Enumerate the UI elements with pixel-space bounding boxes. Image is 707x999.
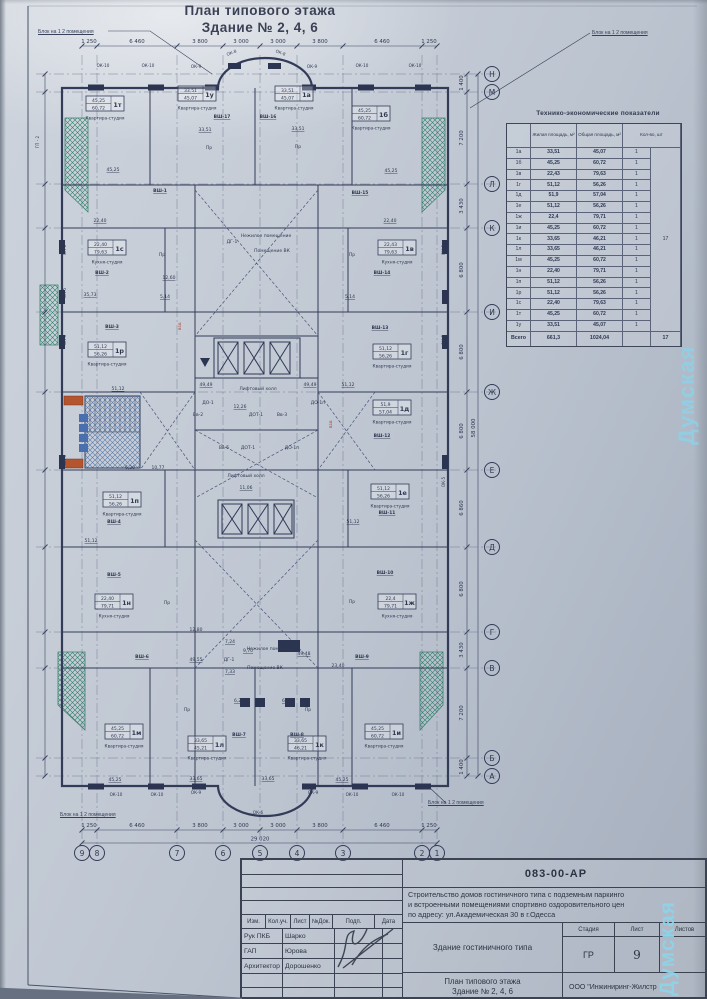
room-label: Пр [184, 707, 190, 713]
window-label: ОК-5 [62, 335, 67, 346]
area-number: 10,77 [152, 465, 165, 471]
area-number: 7,24 [225, 639, 235, 645]
area-number: 49,48 [298, 651, 311, 657]
apartment-type: Квартира-студия [373, 420, 412, 426]
room-label: ДГ-1 [224, 657, 235, 663]
area-number: 23,40 [332, 663, 345, 669]
teo-total: 56,26 [577, 202, 623, 213]
axis-bubble-label: 1 [435, 849, 440, 858]
apartment-code: 1н [122, 599, 131, 607]
dimension-bottom: 1 250 [421, 823, 437, 829]
apartment-living-area: 22,43 [384, 242, 397, 248]
dimension-right: 6 800 [459, 262, 465, 278]
role-architect: Архитектор [242, 958, 282, 973]
dimension-right: 1 400 [459, 75, 465, 91]
teo-code: 1п [507, 278, 531, 289]
name-doroshenko: Дорошенко [282, 958, 334, 973]
apartment-label: 45,2560,721тКвартира-студия [86, 96, 125, 122]
area-number: 45,25 [109, 777, 122, 783]
section-marker [200, 358, 210, 367]
apartment-code: 1к [315, 741, 324, 749]
teo-code: 1и [507, 224, 531, 235]
teo-code: 1н [507, 267, 531, 278]
teo-total: 57,04 [577, 191, 623, 202]
room-label: Пр [206, 145, 212, 151]
room-label: Пр [349, 599, 355, 605]
teo-merged-col [651, 159, 681, 170]
room-label: Вв-5 [219, 445, 229, 451]
teo-living: 33,51 [531, 321, 577, 332]
sheet-title-line1: План типового этажа [150, 3, 370, 18]
apartment-code: 1т [113, 101, 121, 109]
window-label: ОК-9 [191, 790, 202, 795]
area-number: 12,60 [163, 275, 176, 281]
teo-code: 1с [507, 299, 531, 310]
room-label: Пр [159, 252, 165, 258]
window-label: ОК-6 [62, 245, 67, 256]
room-label: Вв-3 [277, 412, 287, 418]
dimension-right: 7 200 [459, 705, 465, 721]
teo-code: 1в [507, 170, 531, 181]
window-label: ОК-10 [142, 63, 155, 68]
teo-code: 1а [507, 148, 531, 159]
apartment-total-area: 57,04 [379, 409, 392, 415]
dimension-total-bottom: 29 020 [251, 837, 270, 843]
teo-count: 1 [623, 224, 651, 235]
teo-living: 51,12 [531, 180, 577, 191]
room-label: ДО-1п [311, 400, 326, 406]
axis-bubble-label: Ж [488, 388, 496, 397]
svg-text:В1Б: В1Б [328, 420, 333, 428]
area-number: 7,33 [225, 669, 235, 675]
dimension-right: 6 800 [459, 581, 465, 597]
teo-total: 45,07 [577, 321, 623, 332]
axis-bubble-label: Л [489, 180, 495, 189]
teo-living: 45,25 [531, 310, 577, 321]
svg-text:В1Б: В1Б [177, 322, 182, 330]
window-label: ОК-5 [441, 477, 446, 488]
apartment-label: 51,1256,261гКвартира-студия [373, 344, 412, 370]
teo-total: 79,63 [577, 170, 623, 181]
vent-shaft-label: ВШ-12 [374, 433, 391, 439]
room-label: Лифтовый холл [227, 472, 264, 479]
apartment-code: 1ж [404, 599, 415, 607]
apartment-code: 1в [405, 245, 414, 253]
window-label: ОК-6 [253, 810, 264, 815]
company-name: ООО "Инжиниринг-Жилстр [562, 972, 707, 999]
apartment-total-area: 46,21 [294, 745, 307, 751]
dimension-top: 6 460 [129, 39, 145, 45]
col-koluch: Кол.уч. [265, 914, 290, 928]
teo-merged-col [651, 170, 681, 181]
axis-bubble-label: И [489, 308, 495, 317]
apartment-total-area: 56,26 [377, 493, 390, 499]
vent-shaft-label: ВШ-2 [95, 270, 109, 276]
dimension-bottom: 3 000 [233, 823, 249, 829]
teo-living: 33,65 [531, 245, 577, 256]
window-label: ОК-10 [409, 63, 422, 68]
room-label: Пр [349, 252, 355, 258]
hall-diagonals [140, 190, 375, 668]
block-label: Блок на 1 2 помещения [428, 800, 484, 806]
apartment-living-area: 22,40 [101, 596, 114, 602]
apartment-total-area: 45,21 [194, 745, 207, 751]
apartment-code: 1г [401, 349, 409, 357]
teo-count: 1 [623, 170, 651, 181]
teo-living: 22,40 [531, 267, 577, 278]
axis-bubble-label: М [489, 88, 495, 97]
apartment-living-area: 22,4 [385, 596, 395, 602]
dimension-right: 6 800 [459, 423, 465, 439]
teo-living: 45,25 [531, 224, 577, 235]
teo-count: 1 [623, 256, 651, 267]
apartment-type: Квартира-студия [86, 116, 125, 122]
vent-shaft-label: ВШ-1 [153, 188, 167, 194]
teo-count: 1 [623, 321, 651, 332]
teo-count: 1 [623, 267, 651, 278]
apartment-type: Квартира-студия [105, 744, 144, 750]
teo-total: 79,71 [577, 213, 623, 224]
apartment-total-area: 79,63 [384, 249, 397, 255]
apartment-total-area: 79,63 [94, 249, 107, 255]
dimension-bottom: 3 800 [312, 823, 328, 829]
apartment-total-area: 60,72 [111, 733, 124, 739]
name-yurova: Юрова [282, 943, 334, 958]
apartment-type: Квартира-студия [365, 744, 404, 750]
window-label: ОК-5 [441, 335, 446, 346]
dimension-right: 3 430 [459, 642, 465, 658]
room-label: Вв-2 [193, 412, 203, 418]
window-label: ОК-10 [356, 63, 369, 68]
apartment-living-area: 51,12 [94, 344, 107, 350]
stairwell [64, 396, 140, 468]
window-label: ОК-8 [226, 48, 238, 57]
teo-living: 22,43 [531, 170, 577, 181]
apartment-code: 1л [215, 741, 224, 749]
apartment-type: Квартира-студия [178, 106, 217, 112]
teo-total: 45,07 [577, 148, 623, 159]
apartment-total-area: 45,07 [281, 95, 294, 101]
room-label: Нежилое помещение [247, 646, 298, 652]
teo-living: 51,12 [531, 278, 577, 289]
apartment-type: Кухня-студия [382, 614, 413, 620]
teo-table-title: Технико-экономические показатели [500, 110, 696, 117]
apartment-living-area: 45,25 [111, 726, 124, 732]
area-number: 12,80 [190, 627, 203, 633]
teo-count: 1 [623, 245, 651, 256]
teo-footer-blank [623, 332, 651, 346]
doc-title: Здание гостиничного типа [402, 922, 562, 972]
axis-bubble-label: 7 [175, 849, 180, 858]
project-line1: Строительство домов гостиничного типа с … [408, 890, 707, 900]
window-label: ОК-9 [308, 790, 319, 795]
apartment-living-area: 45,25 [358, 108, 371, 114]
vent-shaft-label: ВШ-13 [372, 325, 389, 331]
apartment-living-area: 51,9 [380, 402, 390, 408]
apartment-type: Квартира-студия [373, 364, 412, 370]
axis-bubble-label: 5 [258, 849, 263, 858]
teo-count: 1 [623, 191, 651, 202]
teo-living: 22,4 [531, 213, 577, 224]
room-label: Помещение ВК [247, 665, 283, 671]
apartment-label: 45,2560,721мКвартира-студия [105, 724, 144, 750]
window-label: ОК-9 [307, 64, 318, 69]
apartment-living-area: 33,65 [294, 738, 307, 744]
dimension-top: 1 250 [421, 39, 437, 45]
apartment-total-area: 79,71 [384, 603, 397, 609]
dimension-right: 3 430 [459, 198, 465, 214]
apartment-total-area: 60,72 [371, 733, 384, 739]
teo-merged-col [651, 148, 681, 159]
window-label: ОК-10 [346, 792, 359, 797]
apartment-living-area: 45,25 [92, 98, 105, 104]
apartment-label: 22,4079,711нКухня-студия [95, 594, 133, 620]
vent-shaft-label: ВШ-9 [355, 654, 369, 660]
apartment-type: Квартира-студия [188, 756, 227, 762]
apartment-living-area: 51,12 [379, 346, 392, 352]
scanned-floor-plan-sheet: В1Б В1Б 987654321НМЛКИЖЕДГВБА1 2501 2506… [0, 0, 707, 999]
window-label: ОК-5 [62, 288, 67, 299]
teo-total: 56,26 [577, 278, 623, 289]
room-label: Лифтовый холл [239, 385, 276, 392]
dimension-top: 3 000 [270, 39, 286, 45]
teo-living: 22,40 [531, 299, 577, 310]
vent-shaft-label: ВШ-3 [105, 324, 119, 330]
area-number: 33,65 [262, 776, 275, 782]
teo-total: 56,26 [577, 288, 623, 299]
role-ruk-pkb: Рук ПКБ [242, 928, 282, 943]
axis-bubble-label: Г [490, 628, 495, 637]
teo-code: 1т [507, 310, 531, 321]
window-label: ОК-10 [97, 63, 110, 68]
vent-shaft-label: ВШ-14 [374, 270, 391, 276]
dimension-bottom: 6 460 [129, 823, 145, 829]
dimension-bottom: 6 460 [374, 823, 390, 829]
dimension-top: 1 250 [81, 39, 97, 45]
teo-merged-col [651, 191, 681, 202]
axis-bubble-label: Д [489, 543, 495, 552]
vent-shaft-label: ВШ-15 [352, 190, 369, 196]
area-number: 9,70 [243, 648, 253, 654]
room-label: ДО-1 [202, 400, 214, 406]
apartment-label: 51,1256,261пКвартира-студия [103, 492, 142, 518]
apartment-label: 33,5145,071аКвартира-студия [275, 86, 314, 112]
room-label: ДОТ-1 [249, 412, 263, 418]
vent-shaft-label: ВШ-8 [290, 732, 304, 738]
axis-bubble-label: 3 [341, 849, 346, 858]
teo-header-blank [507, 124, 531, 148]
block-label: Блок на 1 2 помещения [592, 30, 648, 36]
apartment-label: 22,4079,631сКухня-студия [88, 240, 126, 266]
teo-code: 1к [507, 234, 531, 245]
apartment-living-area: 33,51 [184, 88, 197, 94]
apartment-living-area: 33,51 [281, 88, 294, 94]
apartment-label: 51,1256,261рКвартира-студия [88, 342, 127, 368]
col-izm: Изм. [242, 914, 265, 928]
teo-total: 79,63 [577, 299, 623, 310]
area-number: 6,22 [234, 698, 244, 704]
vent-shaft-label: ВШ-5 [107, 572, 121, 578]
apartment-total-area: 45,07 [184, 95, 197, 101]
apartment-code: 1а [302, 91, 311, 99]
apartment-total-area: 56,26 [109, 501, 122, 507]
apartment-label: 22,4379,631вКухня-студия [378, 240, 416, 266]
teo-code: 1ж [507, 213, 531, 224]
teo-merged-col [651, 180, 681, 191]
teo-living: 51,12 [531, 288, 577, 299]
block-label: Блок на 1 2 помещения [38, 29, 94, 35]
plan-title-cell: План типового этажа Здание № 2, 4, 6 [402, 972, 562, 999]
window-label: ОК-5 [62, 455, 67, 466]
axis-bubble-label: К [489, 224, 495, 233]
area-number: 33,51 [199, 127, 212, 133]
window-label: ОК-5 [441, 245, 446, 256]
area-number: 11,06 [240, 485, 253, 491]
teo-count: 1 [623, 148, 651, 159]
room-label: Нежилое помещение [241, 233, 292, 239]
apartment-code: 1е [398, 489, 407, 497]
area-number: 51,12 [85, 538, 98, 544]
col-podp: Подп. [332, 914, 374, 928]
room-label: Пр [305, 707, 311, 713]
dimension-top: 3 800 [312, 39, 328, 45]
apartment-living-area: 33,65 [194, 738, 207, 744]
teo-count: 1 [623, 234, 651, 245]
apartment-type: Квартира-студия [103, 512, 142, 518]
teo-header-living: Жилая площадь, м² [531, 124, 577, 148]
apartment-living-area: 51,12 [109, 494, 122, 500]
teo-count: 1 [623, 310, 651, 321]
title-block: Изм. Кол.уч. Лист №Док. Подп. Дата Рук П… [240, 858, 707, 999]
stage-label: Стадия [562, 922, 614, 936]
area-number: 49,49 [200, 382, 213, 388]
apartment-label: 33,5145,071уКвартира-студия [178, 86, 217, 112]
teo-total: 60,72 [577, 224, 623, 235]
dimension-right: 6 800 [459, 344, 465, 360]
window-label: ГП - 2 [35, 135, 40, 148]
room-label: ДО-1п [285, 445, 300, 451]
teo-living: 51,12 [531, 202, 577, 213]
teo-count: 1 [623, 278, 651, 289]
dimension-bottom: 3 800 [192, 823, 208, 829]
room-label: ДГ-1 [227, 239, 238, 245]
apartment-code: 1р [115, 347, 124, 355]
apartment-total-area: 56,26 [379, 353, 392, 359]
sheet-label: Лист [614, 922, 659, 936]
apartment-label: 51,957,041дКвартира-студия [373, 400, 412, 426]
col-data: Дата [374, 914, 402, 928]
col-list: Лист [290, 914, 309, 928]
apartment-label: 33,6545,211лКвартира-студия [188, 736, 227, 762]
axis-bubble-label: В [489, 664, 494, 673]
apartment-code: 1у [205, 91, 214, 99]
area-number: 5,14 [345, 294, 355, 300]
dimension-right: 6 860 [459, 500, 465, 516]
apartment-type: Квартира-студия [352, 126, 391, 132]
plan-title-line2: Здание № 2, 4, 6 [452, 987, 513, 997]
stage-value: ГР [562, 936, 614, 972]
teo-code: 1р [507, 288, 531, 299]
document-code: 083-00-АР [402, 860, 707, 887]
apartment-code: 1и [392, 729, 401, 737]
window-label: ОК-9 [191, 64, 202, 69]
dimension-top: 3 800 [192, 39, 208, 45]
apartment-total-area: 60,72 [92, 105, 105, 111]
window-label: ОК-10 [392, 792, 405, 797]
teo-footer-total: 1024,04 [577, 332, 623, 346]
teo-total: 46,21 [577, 234, 623, 245]
apartment-label: 45,2560,721иКвартира-студия [365, 724, 404, 750]
area-number: 51,12 [342, 382, 355, 388]
vent-shaft-label: ВШ-16 [260, 114, 277, 120]
axis-bubble-label: 4 [295, 849, 300, 858]
dimension-total-right: 58 000 [471, 418, 477, 437]
axis-bubble-label: Е [490, 466, 495, 475]
apartment-living-area: 51,12 [377, 486, 390, 492]
area-number: 45,25 [107, 167, 120, 173]
teo-total: 56,26 [577, 180, 623, 191]
teo-count: 1 [623, 288, 651, 299]
teo-code: 1л [507, 245, 531, 256]
area-number: 6,20 [125, 465, 135, 471]
area-number: 45,25 [336, 777, 349, 783]
apartment-label: 45,2560,721бКвартира-студия [352, 106, 391, 132]
teo-count: 1 [623, 202, 651, 213]
teo-total: 60,72 [577, 159, 623, 170]
teo-total: 60,72 [577, 256, 623, 267]
teo-code: 1у [507, 321, 531, 332]
teo-header-total: Общая площадь, м² [577, 124, 623, 148]
apartment-code: 1д [400, 405, 410, 413]
axis-bubble-label: А [489, 772, 495, 781]
teo-living: 45,25 [531, 159, 577, 170]
apartment-type: Квартира-студия [288, 756, 327, 762]
teo-count: 1 [623, 299, 651, 310]
apartment-label: 22,479,711жКухня-студия [378, 594, 416, 620]
elevator-shafts [214, 338, 300, 538]
area-number: 35,73 [84, 292, 97, 298]
area-number: 49,49 [304, 382, 317, 388]
teo-total: 46,21 [577, 245, 623, 256]
teo-living: 33,65 [531, 234, 577, 245]
name-sharko: Шарко [282, 928, 334, 943]
room-label: Пр [295, 144, 301, 150]
vent-shaft-label: ВШ-4 [107, 519, 121, 525]
dimension-top: 6 460 [374, 39, 390, 45]
teo-footer-label: Всего [507, 332, 531, 346]
apartment-type: Квартира-студия [88, 362, 127, 368]
apartment-total-area: 56,26 [94, 351, 107, 357]
area-number: 49,55 [190, 657, 203, 663]
apartment-living-area: 45,25 [371, 726, 384, 732]
teo-total: 79,71 [577, 267, 623, 278]
teo-total: 60,72 [577, 310, 623, 321]
block-label: Блок на 1 2 помещения [60, 812, 116, 818]
apartment-code: 1с [115, 245, 123, 253]
apartment-type: Кухня-студия [92, 260, 123, 266]
vent-shaft-label: ВШ-17 [214, 114, 231, 120]
window-label: ОК-10 [151, 792, 164, 797]
vent-shaft-label: ВШ-10 [377, 570, 394, 576]
window-label: ОК-10 [110, 792, 123, 797]
teo-code: 1е [507, 202, 531, 213]
area-number: 33,51 [292, 126, 305, 132]
dimension-right: 1 400 [459, 759, 465, 775]
apartment-type: Квартира-студия [275, 106, 314, 112]
axis-bubble-label: 2 [420, 849, 425, 858]
dimension-bottom: 1 250 [81, 823, 97, 829]
teo-code: 1д [507, 191, 531, 202]
